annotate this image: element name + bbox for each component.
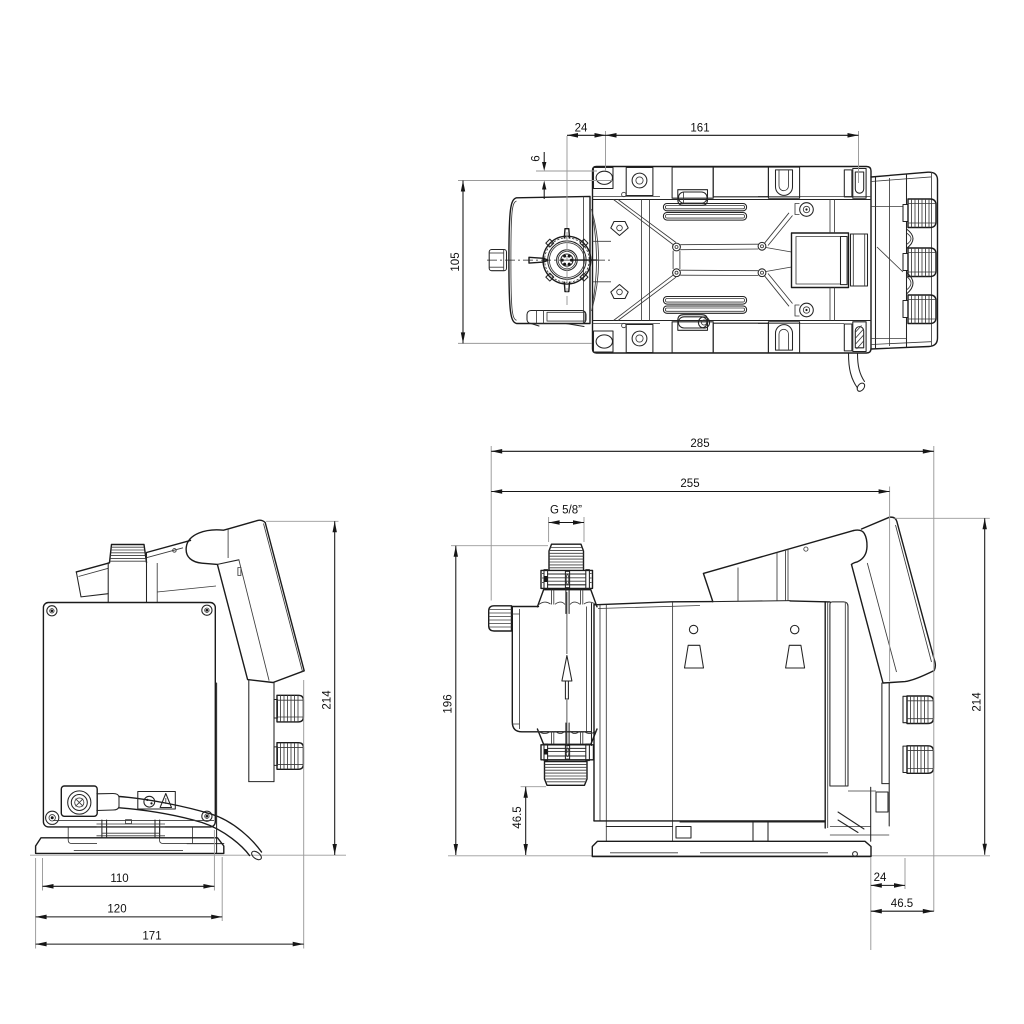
svg-text:105: 105 — [450, 252, 462, 271]
svg-text:46.5: 46.5 — [512, 806, 524, 828]
svg-text:120: 120 — [107, 904, 126, 916]
svg-text:214: 214 — [322, 690, 334, 710]
svg-text:255: 255 — [680, 478, 699, 490]
svg-text:161: 161 — [690, 123, 709, 135]
svg-text:110: 110 — [110, 873, 128, 885]
svg-text:G 5/8”: G 5/8” — [550, 505, 582, 517]
svg-text:171: 171 — [142, 931, 161, 943]
svg-text:6: 6 — [531, 155, 543, 161]
svg-text:24: 24 — [575, 123, 588, 135]
svg-text:196: 196 — [443, 694, 455, 713]
svg-text:46.5: 46.5 — [891, 898, 913, 910]
svg-text:214: 214 — [972, 692, 984, 712]
svg-text:285: 285 — [690, 438, 709, 450]
svg-text:24: 24 — [874, 872, 887, 884]
